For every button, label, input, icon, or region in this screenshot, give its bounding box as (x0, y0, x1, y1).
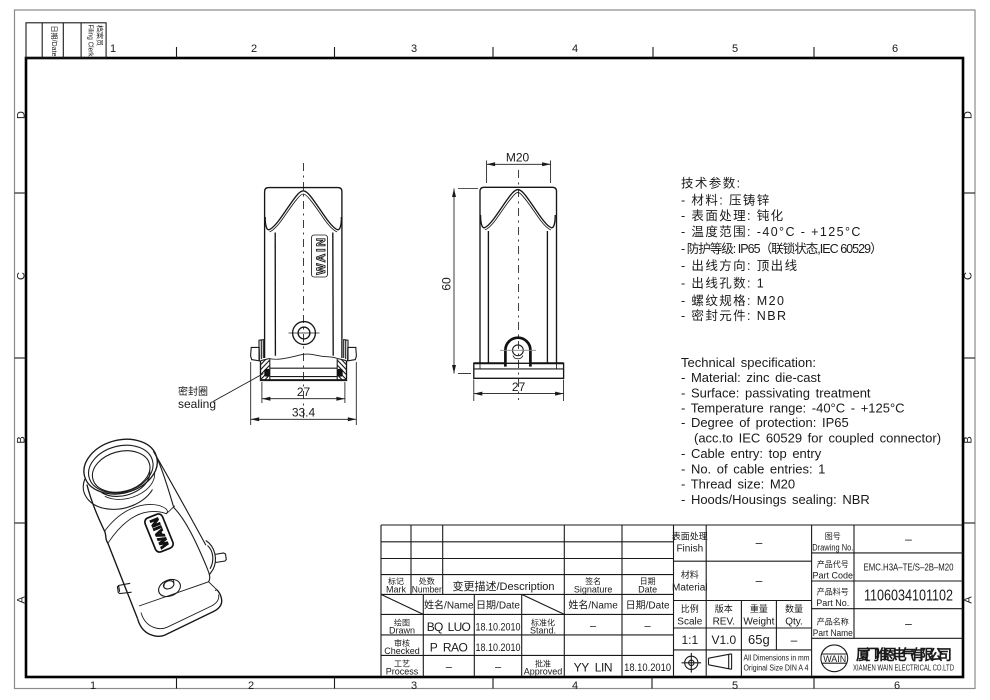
svg-text:Checked: Checked (384, 646, 420, 656)
svg-text:- 表面处理: 钝化: - 表面处理: 钝化 (681, 209, 785, 223)
svg-text:3: 3 (411, 43, 417, 55)
svg-text:Technical specification:: Technical specification: (681, 355, 816, 370)
svg-text:60: 60 (440, 277, 454, 291)
svg-text:- 出线方向: 顶出线: - 出线方向: 顶出线 (681, 258, 798, 273)
svg-text:D: D (963, 111, 975, 119)
svg-text:sealing: sealing (178, 397, 216, 411)
svg-text:BQ LUO: BQ LUO (427, 620, 471, 634)
svg-text:厦门唯恩电气有限公司: 厦门唯恩电气有限公司 (856, 646, 952, 664)
svg-text:- Thread size: M20: - Thread size: M20 (681, 477, 795, 492)
svg-text:(acc.to IEC 60529 for coupled: (acc.to IEC 60529 for coupled connector) (694, 431, 941, 446)
svg-text:- 密封元件: NBR: - 密封元件: NBR (681, 308, 787, 323)
svg-text:XIAMEN WAIN ELECTRICAL CO.LTD: XIAMEN WAIN ELECTRICAL CO.LTD (853, 664, 954, 673)
svg-text:6: 6 (894, 680, 900, 692)
svg-text:- Temperature range: -40°C - +: - Temperature range: -40°C - +125°C (681, 401, 905, 416)
svg-text:–: – (446, 662, 453, 674)
svg-text:Original Size DIN A 4: Original Size DIN A 4 (744, 664, 809, 673)
svg-text:1106034101102: 1106034101102 (864, 588, 953, 605)
svg-text:日期/Date: 日期/Date (50, 26, 58, 57)
svg-text:Process: Process (386, 667, 419, 677)
svg-text:产品代号: 产品代号 (817, 559, 849, 569)
svg-text:比例: 比例 (681, 603, 699, 614)
svg-text:65g: 65g (748, 632, 770, 647)
svg-text:D: D (16, 111, 28, 119)
svg-text:产品料号: 产品料号 (817, 587, 849, 597)
svg-text:WAIN: WAIN (314, 238, 328, 275)
svg-text:P RAO: P RAO (430, 641, 468, 655)
svg-text:A: A (963, 596, 975, 604)
svg-text:日期/Date: 日期/Date (626, 600, 670, 612)
svg-text:3: 3 (411, 680, 417, 692)
svg-text:- Cable entry: top entry: - Cable entry: top entry (681, 446, 822, 461)
svg-text:- Material: zinc die-cast: - Material: zinc die-cast (681, 370, 821, 385)
svg-text:27: 27 (297, 385, 311, 399)
svg-text:–: – (645, 621, 652, 633)
svg-text:Stand.: Stand. (530, 626, 556, 636)
svg-text:YY LIN: YY LIN (574, 661, 613, 675)
svg-text:Qty.: Qty. (785, 617, 803, 628)
svg-text:B: B (16, 436, 28, 443)
svg-text:1: 1 (110, 43, 116, 55)
svg-text:图号: 图号 (825, 532, 841, 541)
svg-text:REV.: REV. (713, 617, 735, 628)
svg-text:版本: 版本 (715, 603, 733, 614)
svg-text:–: – (495, 662, 502, 674)
svg-text:数量: 数量 (785, 603, 803, 614)
svg-text:Drawn: Drawn (389, 626, 415, 636)
svg-text:Signature: Signature (574, 585, 613, 595)
svg-text:- Degree of protection: IP65: - Degree of protection: IP65 (681, 415, 849, 430)
svg-text:6: 6 (892, 43, 898, 55)
svg-text:产品名称: 产品名称 (817, 617, 849, 627)
svg-text:Date: Date (638, 585, 657, 595)
svg-text:–: – (756, 574, 763, 588)
svg-text:–: – (590, 621, 597, 633)
svg-text:Drawing No.: Drawing No. (812, 543, 853, 553)
svg-text:重量: 重量 (750, 603, 768, 614)
svg-text:–: – (905, 617, 912, 631)
svg-text:材料: 材料 (681, 569, 699, 580)
svg-text:4: 4 (572, 43, 578, 55)
svg-text:18.10.2010: 18.10.2010 (476, 622, 521, 634)
svg-text:Scale: Scale (677, 617, 702, 628)
svg-text:表面处理: 表面处理 (672, 531, 708, 542)
svg-text:5: 5 (732, 43, 738, 55)
svg-text:档案员: 档案员 (96, 25, 105, 46)
svg-text:18.10.2010: 18.10.2010 (624, 662, 671, 674)
svg-text:1: 1 (90, 680, 96, 692)
svg-text:4: 4 (572, 680, 578, 692)
svg-text:All Dimensions in mm: All Dimensions in mm (744, 654, 810, 663)
svg-text:C: C (16, 272, 28, 280)
svg-text:A: A (16, 596, 28, 604)
svg-text:B: B (963, 436, 975, 443)
svg-text:5: 5 (732, 680, 738, 692)
svg-text:33.4: 33.4 (292, 406, 316, 420)
svg-text:Number: Number (412, 585, 442, 595)
svg-text:–: – (791, 633, 798, 647)
svg-text:- Hoods/Housings sealing: NBR: - Hoods/Housings sealing: NBR (681, 492, 870, 507)
svg-text:姓名/Name: 姓名/Name (424, 599, 474, 612)
svg-text:- 螺纹规格: M20: - 螺纹规格: M20 (681, 293, 785, 308)
svg-text:2: 2 (251, 43, 257, 55)
svg-text:–: – (905, 532, 912, 546)
svg-text:2: 2 (248, 680, 254, 692)
svg-text:WAIN: WAIN (823, 654, 846, 665)
svg-text:1:1: 1:1 (681, 633, 698, 647)
svg-text:Part Code: Part Code (813, 571, 854, 581)
svg-text:- 材料: 压铸锌: - 材料: 压铸锌 (681, 193, 771, 208)
svg-text:- Surface: passivating treatme: - Surface: passivating treatment (681, 386, 871, 401)
svg-text:- 出线孔数: 1: - 出线孔数: 1 (681, 276, 765, 291)
svg-text:- No. of cable entries: 1: - No. of cable entries: 1 (681, 462, 825, 477)
svg-text:Part Name: Part Name (813, 628, 853, 638)
svg-text:Material: Material (672, 583, 708, 594)
svg-text:- 温度范围: -40°C - +125°C: - 温度范围: -40°C - +125°C (681, 224, 862, 239)
svg-text:Finish: Finish (676, 544, 703, 555)
svg-text:技术参数:: 技术参数: (681, 176, 741, 191)
svg-text:变更描述/Description: 变更描述/Description (452, 579, 554, 593)
svg-text:18.10.2010: 18.10.2010 (476, 642, 521, 654)
svg-text:27: 27 (512, 380, 526, 394)
svg-text:Mark: Mark (386, 585, 406, 595)
svg-text:EMC.H3A–TE/S–2B–M20: EMC.H3A–TE/S–2B–M20 (864, 563, 954, 574)
svg-text:- 防护等级: IP65（联锁状态,IEC 60529）: - 防护等级: IP65（联锁状态,IEC 60529） (681, 241, 884, 256)
svg-text:V1.0: V1.0 (711, 633, 736, 647)
svg-text:C: C (963, 272, 975, 280)
svg-text:姓名/Name: 姓名/Name (568, 599, 618, 612)
svg-text:Filing Clerk: Filing Clerk (87, 25, 94, 57)
svg-text:Approved: Approved (524, 667, 563, 677)
svg-text:Weight: Weight (743, 617, 774, 628)
svg-text:M20: M20 (506, 150, 530, 164)
svg-text:Part No.: Part No. (816, 598, 849, 608)
svg-text:日期/Date: 日期/Date (476, 600, 520, 612)
svg-text:–: – (756, 536, 763, 550)
